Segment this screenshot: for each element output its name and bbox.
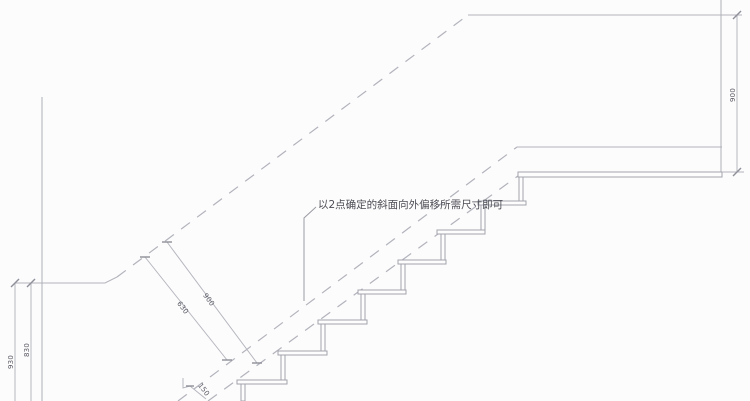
cad-drawing-viewport[interactable]: 630 900 930 830 900 15: [0, 0, 750, 401]
stair-landing: [518, 172, 722, 177]
stair-riser: [241, 384, 245, 401]
stair-riser: [441, 234, 445, 260]
dim-value-left-outer: 930: [7, 355, 15, 369]
dashed-slope-upper: [117, 15, 468, 277]
dim-value-diagonal-inner: 630: [175, 300, 190, 316]
slope-extension-left: [15, 277, 117, 283]
stair-riser: [361, 294, 365, 320]
offset-dimension: 150: [183, 378, 211, 399]
left-dimensions: 930 830: [7, 279, 35, 401]
right-dimension: 900: [722, 11, 744, 176]
annotation-text: 以2点确定的斜面向外偏移所需尺寸即可: [318, 198, 503, 211]
dim-value-right: 900: [729, 88, 737, 102]
dim-value-offset: 150: [196, 382, 211, 398]
diagonal-dimensions: 630 900: [140, 242, 262, 363]
stair-tread: [358, 290, 406, 294]
stair-riser: [519, 177, 523, 201]
stair-riser: [281, 355, 285, 380]
stair-riser: [401, 264, 405, 290]
stair-tread: [278, 351, 327, 355]
stair-riser: [321, 324, 325, 351]
stair-tread: [237, 380, 287, 384]
dim-value-left-inner: 830: [23, 343, 31, 357]
stair-tread: [318, 320, 367, 324]
stair-tread: [437, 230, 485, 234]
stair-section-drawing: 630 900 930 830 900 15: [0, 0, 750, 401]
dashed-slope-middle: [178, 147, 517, 401]
annotation-leader-line: [304, 207, 316, 301]
stair-tread: [398, 260, 446, 264]
